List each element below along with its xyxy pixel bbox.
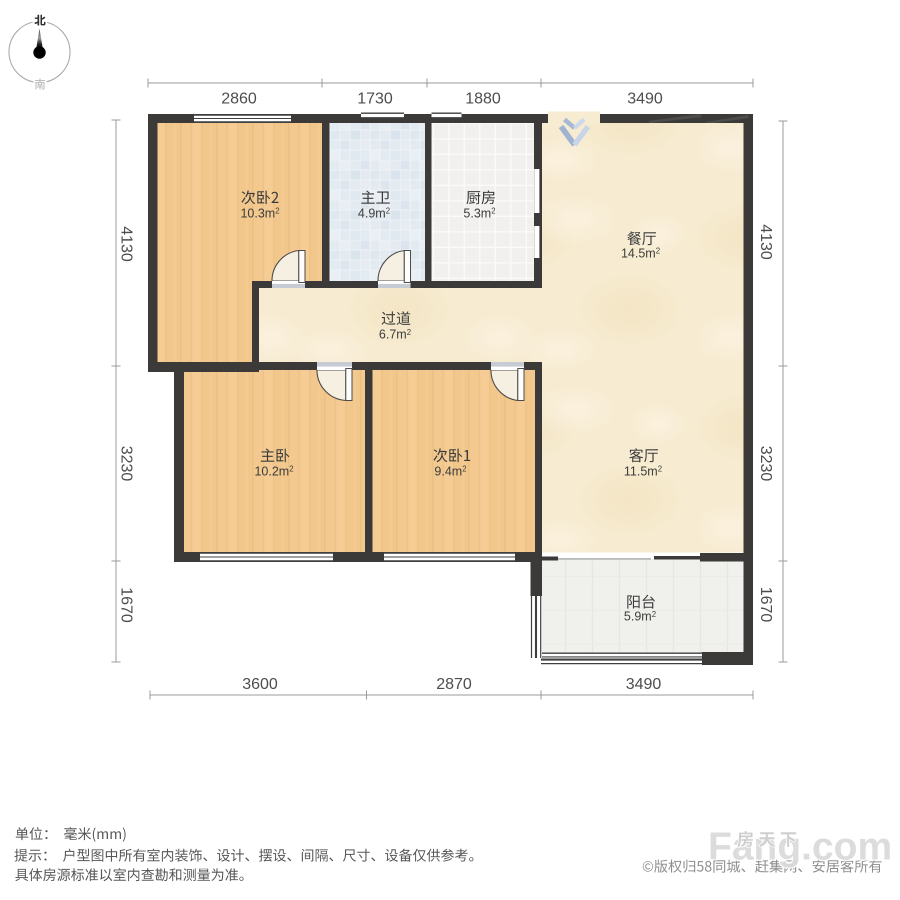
svg-text:6.7m2: 6.7m2 bbox=[379, 328, 411, 342]
svg-text:1730: 1730 bbox=[357, 91, 393, 108]
svg-text:14.5m2: 14.5m2 bbox=[621, 246, 660, 260]
svg-text:3230: 3230 bbox=[118, 446, 135, 482]
svg-text:3230: 3230 bbox=[757, 446, 774, 482]
svg-text:1670: 1670 bbox=[118, 587, 135, 623]
svg-text:9.4m2: 9.4m2 bbox=[434, 465, 466, 479]
svg-text:5.3m2: 5.3m2 bbox=[463, 206, 495, 220]
svg-text:3490: 3490 bbox=[626, 676, 662, 693]
svg-text:1880: 1880 bbox=[465, 91, 501, 108]
svg-text:4130: 4130 bbox=[118, 226, 135, 262]
svg-text:3490: 3490 bbox=[627, 91, 663, 108]
svg-text:10.2m2: 10.2m2 bbox=[254, 465, 293, 479]
svg-text:2860: 2860 bbox=[221, 91, 257, 108]
svg-text:4130: 4130 bbox=[757, 224, 774, 260]
svg-text:10.3m2: 10.3m2 bbox=[240, 206, 279, 220]
svg-text:2870: 2870 bbox=[436, 676, 472, 693]
svg-text:3600: 3600 bbox=[242, 676, 278, 693]
svg-text:Fang.com: Fang.com bbox=[708, 826, 892, 869]
svg-text:1670: 1670 bbox=[757, 587, 774, 623]
svg-text:11.5m2: 11.5m2 bbox=[624, 465, 662, 479]
svg-text:4.9m2: 4.9m2 bbox=[358, 206, 390, 220]
svg-text:5.9m2: 5.9m2 bbox=[624, 610, 656, 624]
